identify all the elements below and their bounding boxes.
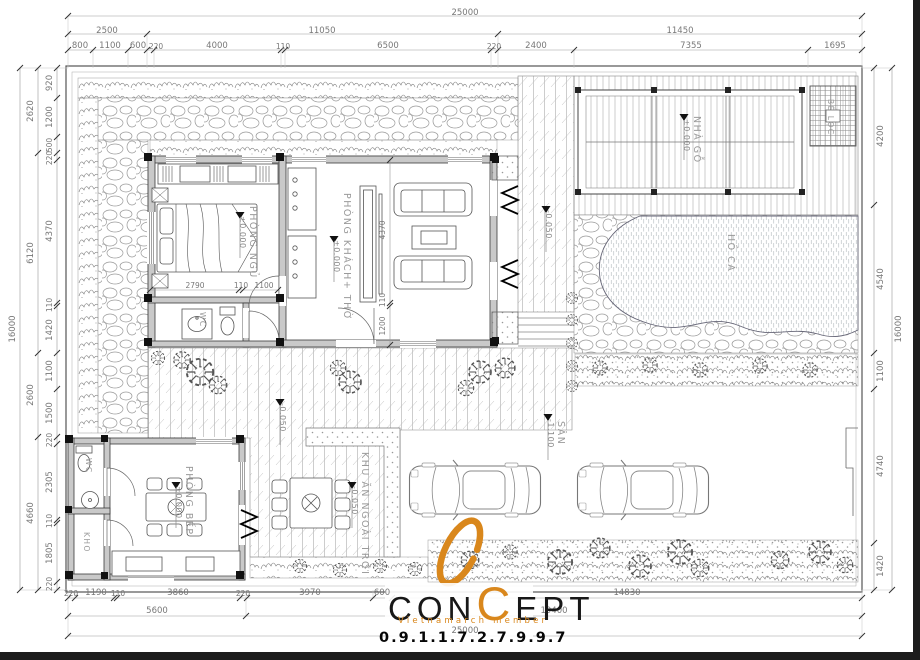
dim-label: 14830 [592, 588, 662, 598]
dim-label: 1695 [800, 41, 870, 51]
dim-label: 4000 [182, 41, 252, 51]
dim-label: 1420 [875, 531, 887, 601]
room-label-bedroom: PHÒNG NGỦ [247, 206, 258, 279]
room-label-living: PHÒNG KHÁCH+ THỜ [341, 193, 352, 321]
dim-label: 11050 [287, 26, 357, 36]
level-outdoor-dining: -0.050 [349, 486, 359, 515]
room-label-fish-pond: HỒ CÁ [725, 234, 736, 272]
level-kitchen: ±0.000 [173, 486, 183, 519]
room-label-storage: KHO [81, 532, 92, 553]
dim-label: 6500 [353, 41, 423, 51]
dim-label: 4660 [25, 478, 37, 548]
room-label-yard: SÂN [555, 421, 566, 445]
car-2 [578, 460, 709, 520]
dim-label: 2500 [72, 26, 142, 36]
fish-pond [574, 215, 858, 353]
dim-label: 220 [208, 589, 278, 598]
dim-label: 110 [248, 42, 318, 51]
room-label-wood-house: NHÀ GỖ [691, 116, 702, 164]
dim-label: 4370 [377, 195, 389, 265]
dim-label: 220 [44, 123, 56, 193]
floor-plan-drawing [0, 0, 920, 660]
car-1 [410, 460, 541, 520]
dim-label: 3860 [143, 588, 213, 598]
dim-label: 16000 [893, 294, 905, 364]
dim-label: 7355 [656, 41, 726, 51]
floor-plan-page: 25000 2500 11050 11450 800 1100 600 220 … [0, 0, 920, 660]
dim-label: 4540 [875, 244, 887, 314]
dim-label: 2400 [501, 41, 571, 51]
dim-label: 1100 [229, 281, 299, 290]
level-veranda: -0.050 [543, 210, 553, 239]
level-terrace: -0.050 [277, 403, 287, 432]
level-bedroom: ±0.000 [237, 216, 247, 249]
dim-label: 220 [44, 549, 56, 619]
room-label-filter-tank: BỂ LỌC [825, 99, 836, 136]
dim-label: 4740 [875, 431, 887, 501]
room-label-kitchen: PHÒNG BẾP [183, 466, 194, 536]
room-label-wc-kitchen: WC [83, 458, 94, 474]
dim-label: 6120 [25, 218, 37, 288]
dim-label: 11450 [645, 26, 715, 36]
room-label-outdoor-dining: KHU ĂN NGOÀI TRỜI [359, 452, 370, 575]
right-edge-bar [913, 0, 920, 660]
kitchen-block [65, 435, 257, 581]
dim-label: 5600 [122, 606, 192, 616]
dim-label: 4200 [875, 101, 887, 171]
level-yard: -1.100 [545, 419, 555, 448]
room-label-wc-house: WC [197, 312, 208, 328]
dim-label: 4370 [44, 196, 56, 266]
dim-label: 2600 [25, 360, 37, 430]
dim-label: 3970 [275, 588, 345, 598]
bottom-edge-bar [0, 652, 920, 660]
level-living: ±0.000 [331, 240, 341, 273]
level-wood-house: ±0.000 [681, 119, 691, 152]
logo-phone-number: 0.9.1.1.7.2.7.9.9.7 [379, 630, 567, 646]
dim-label: 1100 [875, 336, 887, 406]
dim-label: 2620 [25, 76, 37, 146]
dim-label: 16000 [7, 294, 19, 364]
dim-label: 220 [121, 42, 191, 51]
dim-label: 1200 [377, 291, 389, 361]
dim-label: 25000 [430, 8, 500, 18]
logo-subtitle: Vietnamarch member [398, 616, 548, 626]
